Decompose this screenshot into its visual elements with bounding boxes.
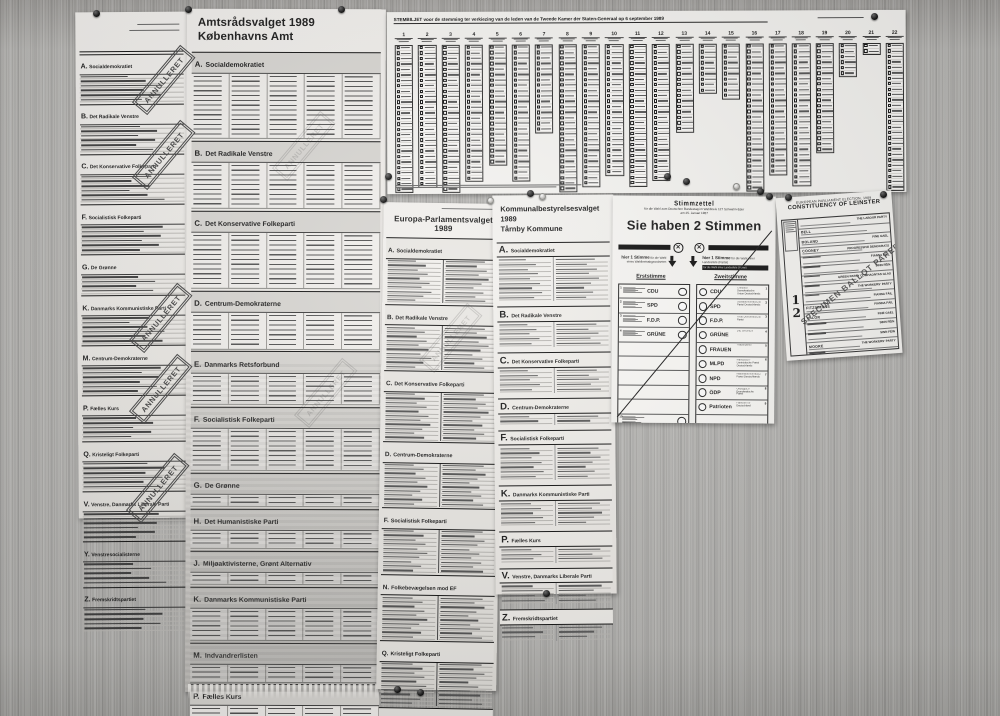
- text-blur: [500, 389, 532, 390]
- text-blur: [682, 95, 692, 96]
- party-name: THE WORKERS' PARTY: [862, 339, 896, 345]
- candidate-grid-column: [228, 665, 266, 681]
- text-blur: [728, 57, 737, 58]
- candidate-name-line: [84, 626, 188, 631]
- vote-checkbox: [748, 164, 751, 167]
- text-blur: [541, 57, 550, 58]
- text-blur: [796, 39, 806, 40]
- vote-checkbox: [771, 61, 774, 64]
- text-blur: [500, 343, 532, 344]
- party-section: K.Danmarks Kommunistiske Parti: [499, 485, 612, 527]
- text-blur: [635, 90, 646, 91]
- vote-checkbox: [561, 160, 564, 163]
- text-blur: [472, 166, 482, 167]
- text-blur: [892, 50, 903, 51]
- vote-checkbox: [794, 55, 797, 58]
- text-blur: [501, 471, 544, 473]
- vote-checkbox: [818, 131, 821, 134]
- text-blur: [499, 288, 532, 289]
- text-blur: [472, 161, 481, 162]
- push-pin: [543, 590, 550, 597]
- candidate-row: [500, 341, 552, 346]
- text-blur: [728, 62, 738, 63]
- party-letter: Z.: [502, 612, 511, 623]
- vote-checkbox: [887, 77, 890, 80]
- vote-checkbox: [607, 45, 610, 48]
- text-blur: [892, 110, 902, 111]
- party-section-header: V.Venstre, Danmarks Liberale Parti: [379, 707, 493, 716]
- text-blur: [401, 101, 412, 102]
- list-number: 4: [765, 329, 767, 333]
- text-blur: [448, 177, 459, 178]
- party-section: C.Det Konservative Folkeparti: [498, 352, 611, 394]
- vote-checkbox: [397, 68, 400, 71]
- text-blur: [502, 627, 533, 628]
- vote-checkbox: [607, 159, 610, 162]
- candidate-row: [502, 635, 554, 640]
- text-blur: [557, 342, 601, 344]
- text-blur: [444, 354, 473, 356]
- vote-checkbox: [771, 142, 774, 145]
- text-blur: [822, 83, 832, 84]
- vote-checkbox: [560, 143, 563, 146]
- text-blur: [541, 106, 551, 107]
- candidate-row: [502, 598, 554, 603]
- text-blur: [682, 84, 693, 85]
- candidate-row: [840, 71, 856, 77]
- text-blur: [635, 160, 646, 161]
- text-blur: [798, 45, 808, 46]
- text-blur: [502, 595, 535, 596]
- vote-checkbox: [748, 159, 751, 162]
- candidate-column: [383, 392, 440, 441]
- text-blur: [401, 150, 412, 151]
- vote-checkbox: [444, 144, 447, 147]
- vote-checkbox: [818, 148, 821, 151]
- vote-checkbox: [654, 148, 657, 151]
- text-blur: [556, 287, 584, 288]
- party-letter: M.: [83, 355, 91, 362]
- vote-checkbox: [537, 127, 540, 130]
- text-blur: [728, 84, 738, 85]
- vote-checkbox: [397, 95, 400, 98]
- party-abbreviation: CDU: [647, 289, 658, 295]
- party-name: Danmarks Kommunistiske Parti: [204, 597, 306, 604]
- vote-checkbox: [490, 95, 493, 98]
- text-blur: [635, 84, 645, 85]
- text-blur: [501, 554, 541, 556]
- text-blur: [471, 52, 480, 53]
- vote-checkbox: [748, 180, 751, 183]
- vote-checkbox: [888, 169, 891, 172]
- vote-checkbox: [444, 133, 447, 136]
- text-blur: [728, 95, 739, 96]
- erststimme-row: 2SPD: [619, 299, 689, 314]
- vote-checkbox: [747, 72, 750, 75]
- vote-checkbox: [630, 94, 633, 97]
- party-letter: D.: [194, 299, 202, 308]
- vote-checkbox: [607, 121, 610, 124]
- candidate-grid-column: [190, 573, 228, 585]
- vote-checkbox: [537, 62, 540, 65]
- text-blur: [565, 177, 576, 178]
- title-line-1: Amtsrådsvalget 1989: [198, 16, 381, 31]
- text-blur: [518, 57, 529, 58]
- vote-checkbox: [817, 71, 820, 74]
- list-number: 8: [765, 387, 767, 391]
- vote-checkbox: [397, 122, 400, 125]
- party-full-name: Freie Demokratische Partei: [737, 316, 761, 322]
- text-blur: [501, 476, 536, 477]
- text-blur: [588, 150, 599, 151]
- text-blur: [82, 235, 161, 237]
- party-letter: K.: [501, 488, 511, 499]
- push-pin: [93, 10, 100, 17]
- text-blur: [518, 155, 528, 156]
- text-blur: [501, 549, 531, 550]
- text-blur: [495, 150, 506, 151]
- vote-checkbox: [607, 127, 610, 130]
- text-blur: [786, 230, 796, 231]
- text-blur: [658, 84, 669, 85]
- vote-checkbox: [397, 177, 400, 180]
- vote-checkbox: [770, 50, 773, 53]
- vote-checkbox: [420, 73, 423, 76]
- text-blur: [565, 79, 575, 80]
- text-blur: [441, 562, 481, 564]
- text-blur: [425, 139, 436, 140]
- list-number: 7: [765, 372, 767, 376]
- candidate-grid: [190, 706, 379, 716]
- text-blur: [609, 40, 619, 41]
- text-blur: [443, 437, 476, 439]
- text-blur: [385, 473, 416, 475]
- text-blur: [775, 171, 786, 172]
- text-blur: [386, 361, 423, 363]
- vote-checkbox: [887, 66, 890, 69]
- text-blur: [752, 56, 762, 57]
- candidate-name-line: [82, 389, 186, 394]
- text-blur: [705, 89, 715, 90]
- candidate-grid-column: [305, 163, 343, 208]
- vote-checkbox: [514, 149, 517, 152]
- candidate-grid-column: [267, 233, 305, 288]
- vote-checkbox: [397, 79, 400, 82]
- text-blur: [82, 226, 163, 228]
- party-letter: F.: [500, 433, 507, 444]
- vote-checkbox: [677, 126, 680, 129]
- vote-checkbox: [513, 67, 516, 70]
- candidate-grid-column: [266, 429, 304, 469]
- text-blur: [845, 72, 854, 73]
- vote-checkbox: [771, 66, 774, 69]
- text-blur: [385, 437, 424, 439]
- vote-checkbox: [771, 110, 774, 113]
- text-blur: [659, 155, 670, 156]
- candidate-row: [558, 474, 610, 479]
- push-pin: [664, 173, 671, 180]
- vote-checkbox: [747, 142, 750, 145]
- text-blur: [382, 667, 423, 669]
- vote-checkbox: [700, 67, 703, 70]
- push-pin: [385, 173, 392, 180]
- text-blur: [388, 269, 418, 271]
- text-blur: [446, 41, 456, 42]
- text-blur: [556, 296, 586, 297]
- text-blur: [623, 289, 638, 290]
- text-blur: [752, 149, 763, 150]
- vote-checkbox: [514, 127, 517, 130]
- party-name: THE LABOUR PARTY: [856, 215, 887, 221]
- text-blur: [448, 101, 457, 102]
- text-blur: [559, 631, 594, 632]
- vote-checkbox: [677, 110, 680, 113]
- vote-checkbox: [631, 132, 634, 135]
- vote-checkbox: [794, 104, 797, 107]
- candidate-row: [442, 436, 496, 441]
- candidate-detail-blur: [809, 346, 860, 350]
- vote-checkbox: [397, 100, 400, 103]
- text-blur: [679, 40, 689, 41]
- party-letter: P.: [501, 534, 509, 545]
- candidate-grid-column: [341, 609, 379, 640]
- vote-checkbox: [584, 154, 587, 157]
- text-blur: [499, 297, 534, 298]
- text-blur: [773, 39, 783, 40]
- text-blur: [83, 376, 159, 378]
- vote-checkbox: [490, 84, 493, 87]
- text-blur: [84, 481, 144, 483]
- text-blur: [443, 433, 484, 435]
- text-blur: [588, 166, 599, 167]
- text-blur: [892, 105, 901, 106]
- vote-checkbox: [747, 99, 750, 102]
- text-blur: [495, 96, 505, 97]
- vote-checkbox: [631, 148, 634, 151]
- vote-checkbox: [770, 44, 773, 47]
- vote-checkbox: [514, 122, 517, 125]
- text-blur: [612, 160, 623, 161]
- text-blur: [443, 416, 480, 418]
- vote-checkbox: [444, 138, 447, 141]
- text-blur: [501, 558, 533, 559]
- vote-checkbox: [420, 46, 423, 49]
- push-pin: [380, 196, 387, 203]
- party-section-header: P.Fælles Kurs: [499, 531, 612, 547]
- text-blur: [541, 90, 552, 91]
- candidate-column: [382, 463, 439, 507]
- text-blur: [612, 139, 623, 140]
- vote-checkbox: [420, 62, 423, 65]
- vote-checkbox: [467, 78, 470, 81]
- vote-checkbox: [443, 46, 446, 49]
- vote-checkbox: [513, 84, 516, 87]
- text-blur: [83, 385, 157, 387]
- text-blur: [541, 52, 552, 53]
- text-blur: [611, 57, 622, 58]
- text-blur: [425, 112, 435, 113]
- text-blur: [612, 149, 621, 150]
- text-blur: [558, 548, 600, 550]
- party-section-header: A.Socialdemokratiet: [386, 238, 500, 261]
- vote-checkbox: [397, 155, 400, 158]
- vote-checkbox: [818, 137, 821, 140]
- candidate-grid: [191, 495, 380, 508]
- candidate-box: [535, 44, 554, 133]
- vote-checkbox: [794, 88, 797, 91]
- text-blur: [775, 111, 784, 112]
- party-name: Venstresocialisterne: [91, 552, 140, 558]
- text-blur: [441, 566, 473, 568]
- candidate-columns: [383, 392, 498, 442]
- text-blur: [611, 46, 621, 47]
- zweitstimme-row: F.D.P.Freie Demokratische Partei3: [697, 314, 768, 329]
- vote-circle: [698, 374, 707, 383]
- text-blur: [81, 180, 131, 182]
- text-blur: [565, 161, 574, 162]
- party-name: FIANNA FÁIL: [874, 291, 893, 296]
- text-blur: [445, 274, 479, 276]
- vote-checkbox: [560, 62, 563, 65]
- text-blur: [892, 56, 903, 57]
- x-mark-icon: ✕: [694, 243, 704, 253]
- text-blur: [565, 171, 576, 172]
- vote-circle: [698, 403, 707, 412]
- text-blur: [799, 149, 808, 150]
- text-blur: [499, 273, 538, 275]
- text-blur: [401, 172, 412, 173]
- vote-checkbox: [724, 77, 727, 80]
- party-sections: A.SocialdemokratietB.Det Radikale Venstr…: [497, 241, 613, 641]
- vote-checkbox: [654, 61, 657, 64]
- party-section: B.Det Radikale Venstre: [497, 306, 610, 348]
- vote-checkbox: [817, 66, 820, 69]
- party-name: Miljøaktivisterne, Grønt Alternativ: [203, 561, 312, 568]
- vote-checkbox: [420, 106, 423, 109]
- party-name: Socialistisk Folkeparti: [510, 436, 564, 442]
- vote-checkbox: [841, 44, 844, 47]
- text-blur: [682, 117, 692, 118]
- text-blur: [845, 67, 856, 68]
- vote-checkbox: [700, 45, 703, 48]
- text-blur: [588, 84, 599, 85]
- party-letter: B.: [195, 149, 203, 158]
- vote-checkbox: [467, 165, 470, 168]
- vote-checkbox: [771, 164, 774, 167]
- text-blur: [472, 150, 483, 151]
- text-blur: [682, 111, 691, 112]
- text-blur: [84, 568, 151, 570]
- text-blur: [682, 89, 691, 90]
- party-abbreviation: MLPD: [710, 361, 725, 367]
- party-section-header: B.Det Radikale Venstre: [497, 306, 610, 322]
- vote-checkbox: [560, 132, 563, 135]
- candidate-grid-column: [304, 609, 342, 640]
- candidate-column: [498, 368, 554, 394]
- vote-checkbox: [560, 122, 563, 125]
- text-blur: [443, 407, 478, 409]
- text-blur: [385, 428, 422, 430]
- text-blur: [518, 172, 527, 173]
- candidate-row: [607, 170, 623, 176]
- party-abbreviation: FRAUEN: [710, 347, 732, 353]
- text-blur: [752, 171, 763, 172]
- vote-checkbox: [467, 176, 470, 179]
- vote-checkbox: [677, 116, 680, 119]
- text-blur: [558, 507, 592, 508]
- candidate-grid-column: [342, 233, 380, 288]
- text-blur: [83, 381, 140, 383]
- text-blur: [442, 491, 472, 493]
- vote-checkbox: [654, 67, 657, 70]
- candidate-grid-column: [229, 74, 267, 138]
- vote-checkbox: [700, 77, 703, 80]
- text-blur: [502, 590, 543, 592]
- text-blur: [892, 45, 902, 46]
- text-blur: [384, 535, 424, 537]
- text-blur: [424, 69, 434, 70]
- candidate-row: [536, 126, 552, 132]
- text-blur: [424, 47, 434, 48]
- text-blur: [752, 182, 761, 183]
- vote-checkbox: [444, 166, 447, 169]
- text-blur: [387, 299, 415, 301]
- candidate-grid: [191, 313, 380, 350]
- vote-checkbox: [397, 73, 400, 76]
- text-blur: [892, 175, 902, 176]
- candidate-column: [497, 257, 553, 302]
- text-blur: [443, 411, 488, 413]
- text-blur: [501, 452, 540, 454]
- text-blur: [752, 84, 763, 85]
- party-section-header: C.Det Konservative Folkeparti: [498, 352, 611, 368]
- vote-checkbox: [888, 120, 891, 123]
- vote-checkbox: [748, 153, 751, 156]
- candidate-grid-column: [305, 233, 343, 288]
- candidate-grid-column: [228, 495, 266, 507]
- vote-checkbox: [700, 50, 703, 53]
- text-blur: [471, 101, 481, 102]
- text-blur: [658, 138, 667, 139]
- vote-checkbox: [584, 89, 587, 92]
- ballot-list-column: 15: [722, 31, 740, 100]
- push-pin: [871, 13, 878, 20]
- text-blur: [385, 432, 414, 434]
- party-letter: B.: [499, 309, 509, 320]
- frayed-paper-edge: [188, 684, 384, 699]
- header-text-blur: [137, 24, 179, 26]
- text-blur: [588, 57, 599, 58]
- vote-checkbox: [444, 127, 447, 130]
- vote-checkbox: [584, 72, 587, 75]
- candidate-box: [815, 43, 834, 154]
- text-blur: [658, 128, 669, 129]
- party-full-name: Nationaldemokratische Partei Deutschland…: [737, 373, 761, 379]
- candidate-box: [792, 43, 811, 186]
- text-blur: [381, 698, 420, 700]
- vote-checkbox: [654, 159, 657, 162]
- text-blur: [752, 122, 762, 123]
- text-blur: [752, 89, 763, 90]
- candidate-columns: [500, 583, 613, 605]
- text-blur: [84, 577, 149, 579]
- party-name: SINN FÉIN: [879, 319, 894, 324]
- vote-checkbox: [677, 67, 680, 70]
- text-blur: [622, 421, 641, 422]
- candidate-column: [553, 257, 610, 302]
- text-blur: [845, 45, 856, 46]
- vote-checkbox: [420, 57, 423, 60]
